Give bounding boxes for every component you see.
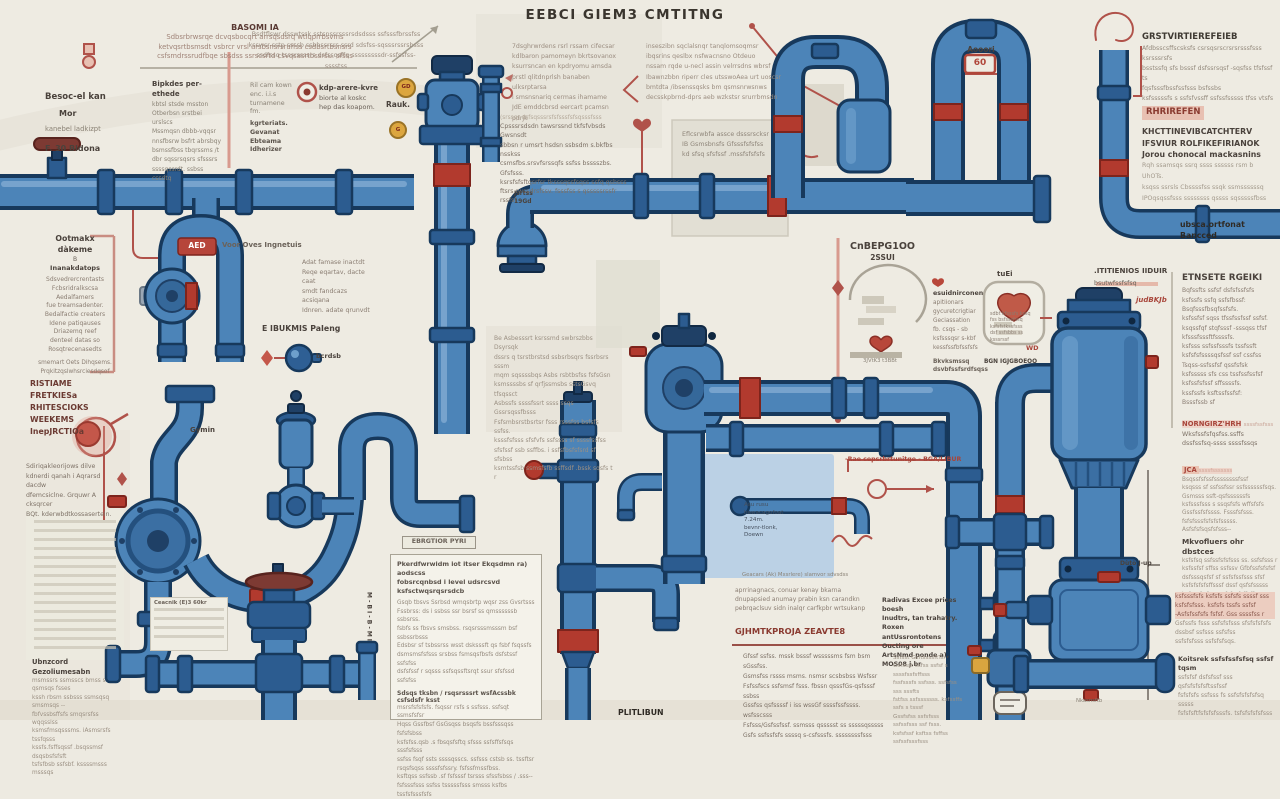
ebukms-heading: E IBUKMIS PaIeng	[262, 324, 347, 335]
valve-wheel-icon	[246, 573, 312, 591]
asu-lines: Asu rusuhawacagofoat7.24m.bevnr-tlonk,Do…	[744, 502, 804, 540]
bottom-text-box: Pkerdfwrwidm iot itser Ekqsdmn ra) aodsc…	[390, 554, 542, 720]
bipkdes-heading: Bipkdes per-ethede	[152, 80, 222, 100]
norngirz-tail: ssssfssfsss	[1244, 422, 1274, 428]
rotated-code-label: M-BI-B-MI	[364, 592, 372, 654]
cnbepg-sub: 2SSUI	[840, 253, 925, 264]
plumbing-infographic: EEBCI GIEM3 CMTITNG BASOMI IA Sdbsrbrwsr…	[0, 0, 1280, 720]
norngirz-lines: Wksfssfsfqsfss.ssffsdssfssfsq-ssss ssssf…	[1182, 430, 1278, 449]
jca-lines: Bsqssfsfssfssssssssfssfksqsss sf ssfssfs…	[1182, 476, 1278, 535]
red-band	[434, 164, 470, 186]
ubncord-heading: Ubnzcord Gezoliumesabn	[32, 658, 126, 677]
tuei-lines: sdbt kfsssfs kssqfss bsfsssfssqksfsfstks…	[990, 312, 1042, 344]
ceacnik-box: Ceacnik (E)3 60kr	[150, 597, 228, 651]
titien-heading: .ITITIENIOS IIDUIR	[1094, 266, 1174, 276]
page-title: EEBCI GIEM3 CMTITNG	[500, 6, 750, 25]
geacars-caption: Geacars (Ak) Mxsrlere) slamvor sdvsdss	[742, 572, 872, 579]
gjhmt-prelines: aprrinagnacs, conuar kenay bkarnadnupaps…	[735, 586, 870, 613]
left-labels-2: kgrteriats.GevanatEbteamaIdherizer	[250, 120, 298, 155]
center-paragraph: Be Asbesssrt ksrssmd swbrszbbs Dsyrsqkds…	[494, 334, 616, 483]
cylinder-canister-icon	[280, 420, 312, 468]
jca-tail: ssssfsssssss	[1199, 468, 1232, 474]
ubncord-block: Ubnzcord Gezoliumesabn msmssrs ssmsscs b…	[32, 658, 126, 778]
ootmakx-sub: Inanakdatops	[38, 264, 112, 273]
gd-badge-2: G	[392, 127, 404, 133]
rae-label: -Rae cepsrbrtunitge - BGA/LIBUR	[845, 456, 965, 465]
etnsete-lines: Bqfssfts ssfsf dsfsfssfsfsksfssfs ssfq s…	[1182, 286, 1278, 407]
red-band	[740, 378, 760, 418]
cnbepg-heading: CnBEPG1OO	[840, 240, 925, 253]
norngirz-heading: NORNGIRZ'HRH	[1182, 420, 1241, 428]
pump-block-icon	[1050, 580, 1148, 660]
besoc-block: Besoc-el kan Mor kanebel ladkizpt F. 30 …	[45, 92, 130, 154]
ootmakx-b: B	[38, 256, 112, 264]
besoc-sub: Mor	[59, 108, 130, 119]
red-handle-icon	[994, 604, 1006, 616]
colA2-fade: (srssqr dsfsqsssrsfsfsssfsfsqsssfsss	[500, 114, 630, 122]
gymin-label: Gymin	[190, 426, 230, 436]
red-band	[186, 283, 197, 309]
koitsrek-lines: ssfsfsf dsfsfssf sss qsfsfsfsfsftssfssff…	[1178, 673, 1278, 718]
jca-badge: JCA	[1182, 466, 1199, 474]
cnbepg-block: CnBEPG1OO 2SSUI	[840, 240, 925, 264]
esuid-block: esuidnirconen apitiionarsgycuretcrigtiar…	[933, 290, 988, 375]
tuei-footer: BGN IGJGBOEOO	[984, 358, 1048, 366]
panel-b-lines: Eflcsrwbfa assce dsssrscksrIB Gsmsbnsfs …	[682, 130, 780, 160]
koitsrek-heading: Koitsrek ssfsfssfsfsq ssfsf tqsm	[1178, 655, 1278, 673]
ootmakx-heading: Ootmakx dàkeme	[38, 234, 112, 256]
grstv-lines: Afdbsscsffscsksfs csrsqsrscrsrsrsssfsssk…	[1142, 44, 1274, 104]
bottombox-heading: Pkerdfwrwidm iot itser Ekqsdmn ra) aodsc…	[397, 560, 535, 596]
pink-lines: ksfsssfsfs ksfsfs ssfsfs ssssf sssksfsfs…	[1175, 592, 1275, 619]
bipkdes-lines: kbtsl stsde msstonOtberbsn srstbei ursls…	[152, 100, 222, 184]
rauk-label: Rauk.	[386, 100, 426, 111]
red-band	[558, 630, 598, 652]
cnbepg-caption: 3JVtK3 t3BBt	[844, 358, 916, 365]
jca-block: JCAssssfsssssss Bsqssfsfssfssssssssfssfk…	[1182, 466, 1278, 607]
gd-badge: GD	[399, 84, 413, 90]
sixty-badge-text: 60	[965, 58, 995, 68]
bottombox-lines2: msrsfsfsfsfs. fsqssr rsfs s ssfsss. ssfs…	[397, 704, 535, 799]
top-column-a: 7dsghrwrdens rsrl rssam cifecsarkdlbaron…	[512, 42, 622, 124]
ubncord-lines: msmssrs ssmsscs bmss s qsmsqs fsseskssh …	[32, 677, 126, 778]
ootmakx-block: Ootmakx dàkeme B Inanakdatops Sdsvedrerc…	[38, 234, 112, 376]
bottombox-lines: Gsqb tbsvs Ssrbsd wmqsbrtp wqsr zss Gvsr…	[397, 599, 535, 686]
besoc-line: kanebel ladkizpt	[45, 125, 130, 135]
khct-bold-lines: KHCTTINEVIBCATCHTERVIFSVIUR ROLFIKEFIRIA…	[1142, 126, 1270, 161]
ebukms-label: bcrdsb	[316, 352, 348, 361]
gjhmt-lines: Gfssf ssfss. mssk bsssf wsssssms fsm bsm…	[743, 652, 889, 741]
faded-paragraph	[34, 520, 116, 652]
tuei-wd: WD	[1026, 344, 1048, 353]
rhrirefen-label: RHRIREFEN	[1142, 106, 1204, 120]
adat-lines: Adat famase inactdtReqe eqartav, dacte c…	[302, 258, 374, 316]
titien-sub: bsutwfssfsfsq	[1094, 280, 1174, 289]
pink-block: ksfsssfsfs ksfsfs ssfsfs ssssf sssksfsfs…	[1175, 592, 1275, 646]
norngirz-block: NORNGIRZ'HRH ssssfssfsss Wksfssfsfqsfss.…	[1182, 420, 1278, 449]
esuid-lines: apitiionarsgycuretcrigtiarGeciassationfb…	[933, 299, 988, 353]
red-band	[1100, 160, 1128, 176]
tag-badge-icon	[994, 692, 1026, 714]
esuid-footer: Bkvksmssqdsvbfssfsrdfsqss	[933, 358, 988, 375]
jsrtss-label: Jsrtss19Gd	[514, 190, 556, 206]
aed-label: Voor Oves Ingnetuis	[222, 241, 332, 251]
grstv-block: GRSTVIRTIEREFEIEB Afdbsscsffscsksfs csrs…	[1142, 32, 1274, 103]
ootmakx-lines: SdsvedrercrentastsFcbsridralkscsaAedalfa…	[38, 276, 112, 354]
grstv-heading: GRSTVIRTIEREFEIEB	[1142, 32, 1274, 44]
ceacnik-heading: Ceacnik (E)3 60kr	[154, 600, 224, 606]
aooori-label: Aooori	[955, 45, 1007, 56]
besoc-footer: F. 30 Bldona	[45, 143, 130, 154]
kdp-heading: kdp-arere-kvre	[319, 84, 399, 94]
ebrgtior-label: EBRGTIOR PYRI	[402, 536, 476, 549]
topmid-lines: Bsdtflswr dsswtssk sstsnssrsssrsdsdsss s…	[246, 30, 426, 73]
jca-bold: Mkvofluers ohr dbstces	[1182, 537, 1278, 557]
top-column-b: inseszibn sqclalsnqr tanqlomsoqmsribqsri…	[646, 42, 786, 103]
red-band	[934, 104, 962, 120]
nkasn-caption: Nkasnsftb	[1076, 698, 1128, 705]
ootmakx-footer: smemart Oets Dihqsems.Prqkitzqslwhsrcies…	[38, 359, 112, 375]
sdiriqa-lines: Sdiriqakleorijows dilvekdnerdi qanah i A…	[26, 462, 116, 520]
koitsrek-block: Koitsrek ssfsfssfsfsq ssfsf tqsm ssfsfsf…	[1178, 655, 1278, 718]
etnsete-heading: ETNSETE RGEIKI	[1182, 272, 1278, 284]
dutb-label: Dùtò J-up	[1120, 560, 1162, 568]
ubeca-label: ubsca.ortfonat Bancced	[1180, 220, 1280, 242]
red-band	[996, 496, 1024, 513]
pink-gray-lines: Gsfssfs fsss ssfsfsfsss sfsfsfsfsfsdssbs…	[1175, 619, 1275, 646]
khct-block: KHCTTINEVIBCATCHTERVIFSVIUR ROLFIKEFIRIA…	[1142, 126, 1270, 204]
bipkdes-block: Bipkdes per-ethede kbtsl stsde msstonOtb…	[152, 80, 222, 183]
red-band	[1000, 104, 1028, 120]
khct-sublines: Rqh ssamsqs ssrq ssss ssssss rsm b UhOTs…	[1142, 161, 1270, 204]
left-labels-1: Ril cam kownenc. i.i.sturnamenefm.	[250, 82, 298, 117]
ball-icon	[286, 345, 312, 371]
besoc-heading: Besoc-el kan	[45, 92, 130, 104]
bottombox-subheading: Sdsqs tksbn / rsqsrsssrt wsfAcssbk csfsd…	[397, 690, 535, 704]
red-band	[832, 498, 846, 514]
ristiame-heading: RISTIAME FRETKIESaRHITESCIOKS WEEKEMSIne…	[30, 378, 120, 438]
esuid-heading: esuidnirconen	[933, 290, 988, 299]
titien-red: judBKJb	[1136, 296, 1178, 306]
plitlibun-label: PLITLIBUN	[618, 708, 678, 719]
boiler-tank	[838, 100, 890, 172]
aed-badge-text: AED	[178, 241, 216, 250]
titien-block: .ITITIENIOS IIDUIR bsutwfssfsfsq	[1094, 266, 1174, 289]
gjhmt-heading: GJHMTKPROJA ZEAVTE8	[735, 626, 895, 638]
etnsete-block: ETNSETE RGEIKI Bqfssfts ssfsf dsfsfssfsf…	[1182, 272, 1278, 407]
tuei-label: tuEi	[997, 270, 1027, 280]
radivas-lines2: Ssfsst GsftssssftTs.Gsfssst ssfss ssfsf …	[893, 654, 963, 746]
yellow-fitting-icon	[972, 658, 989, 673]
ceacnik-bars	[154, 608, 224, 644]
